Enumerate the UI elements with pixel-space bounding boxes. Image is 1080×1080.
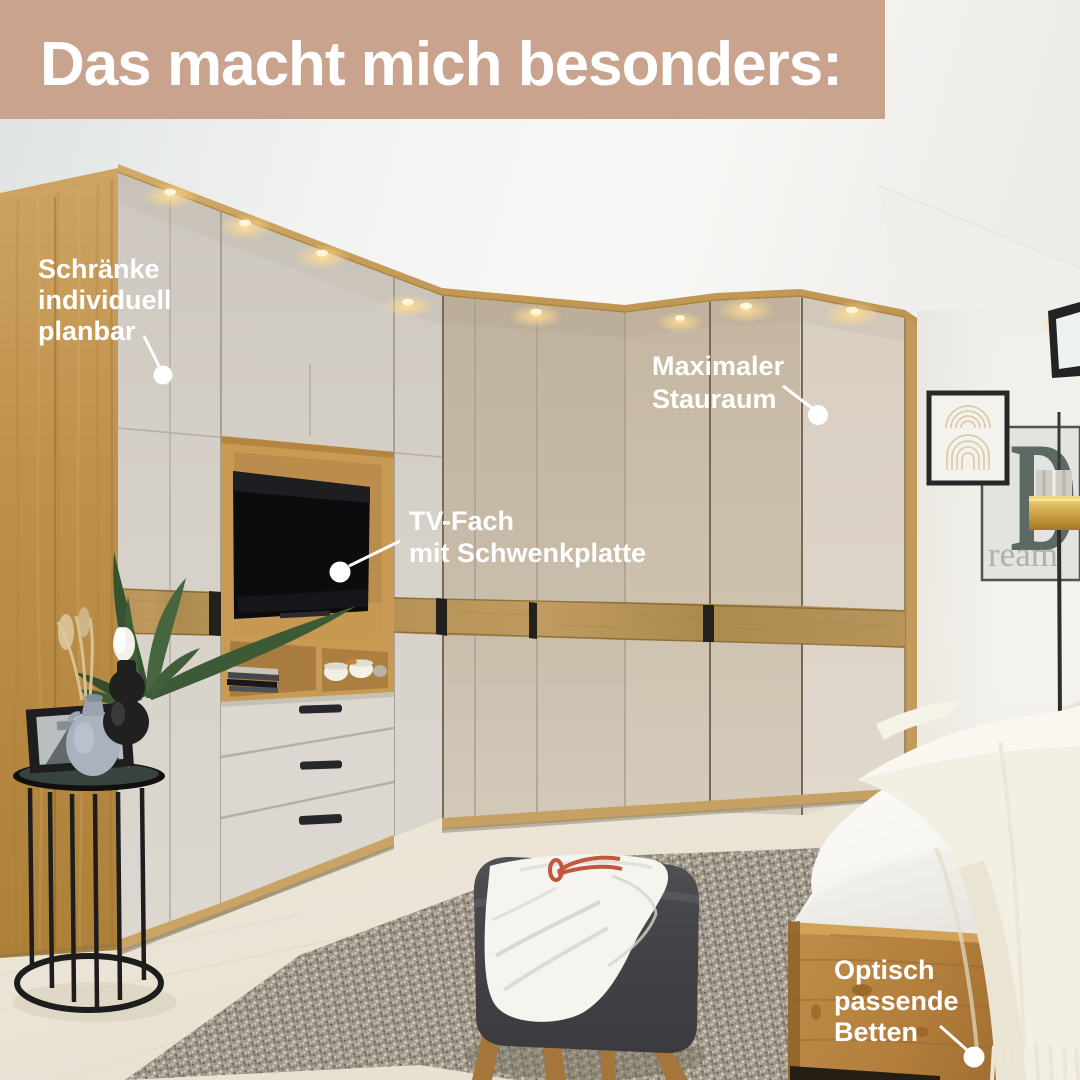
svg-text:ream: ream [988, 535, 1058, 574]
